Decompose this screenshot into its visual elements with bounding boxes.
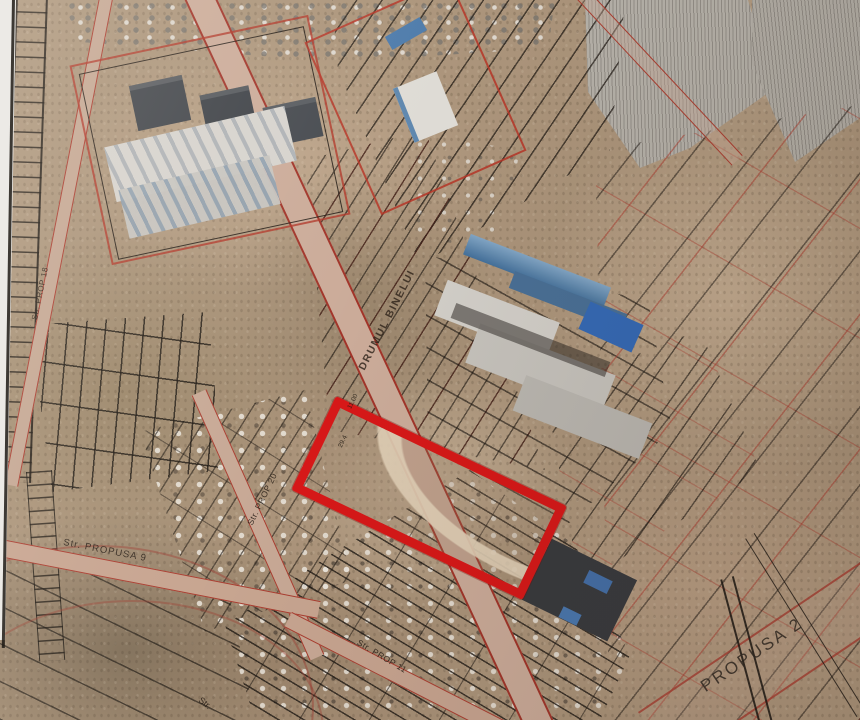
highlighted-parcel	[291, 396, 567, 600]
road-top-right	[568, 0, 743, 166]
terrain-patch	[610, 0, 860, 160]
cadastral-map: DRUMUL BINELUI Str. PROP 20 Str. PROP 18…	[0, 0, 860, 720]
